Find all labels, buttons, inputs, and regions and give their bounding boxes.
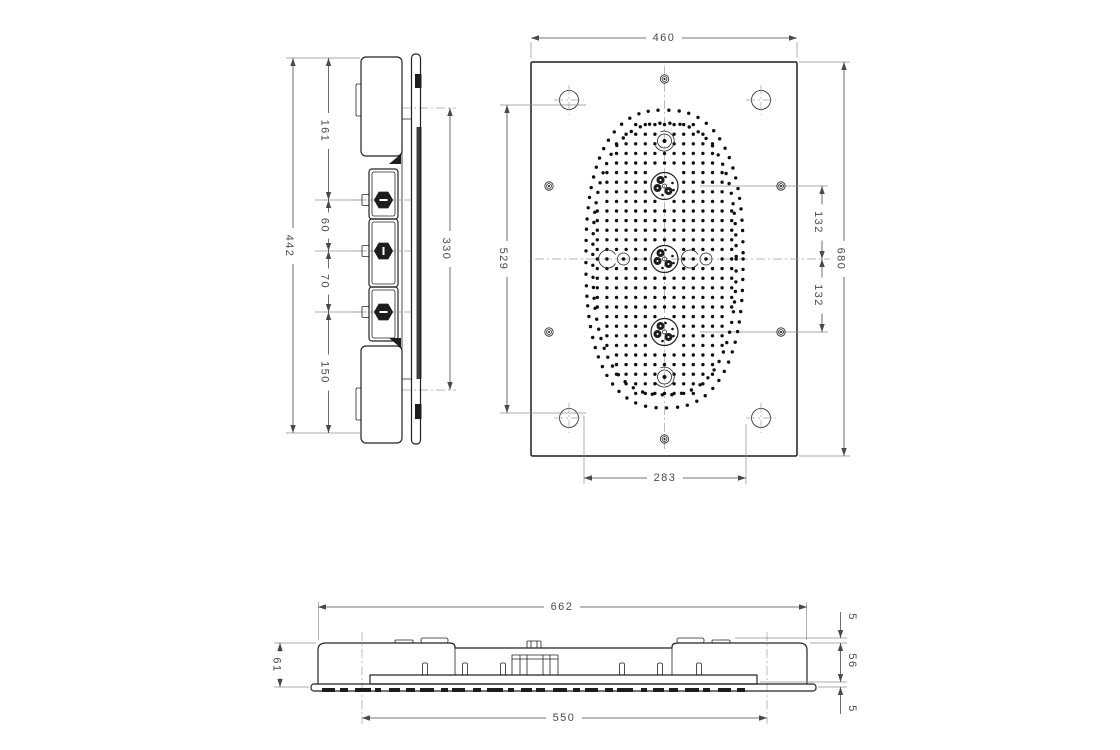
dim-housing-depth: 56 bbox=[846, 653, 858, 668]
dim-panel-lip: 5 bbox=[846, 705, 858, 713]
dim-lower-cluster-spacing: 132 bbox=[812, 284, 824, 307]
dim-third-valve-to-bottom: 150 bbox=[319, 361, 331, 384]
dim-first-to-second-valve: 60 bbox=[319, 218, 331, 233]
dim-spray-field-width: 283 bbox=[654, 472, 677, 484]
dim-overall-width: 662 bbox=[551, 601, 574, 613]
dim-bracket-span: 330 bbox=[440, 238, 452, 261]
dim-spray-field-height: 529 bbox=[497, 248, 509, 271]
dim-overall-height: 442 bbox=[283, 235, 295, 258]
dim-panel-width: 460 bbox=[653, 32, 676, 44]
front-view bbox=[500, 35, 850, 484]
dim-mounting-span: 550 bbox=[553, 712, 576, 724]
technical-drawing-canvas: 442 161 60 70 150 330 460 529 680 132 13… bbox=[0, 0, 1120, 750]
dim-ceiling-gap: 5 bbox=[846, 613, 858, 621]
dim-top-to-first-valve: 161 bbox=[319, 120, 331, 143]
dim-second-to-third-valve: 70 bbox=[319, 274, 331, 289]
dim-overall-depth: 61 bbox=[271, 657, 283, 672]
technical-drawing-page: 442 161 60 70 150 330 460 529 680 132 13… bbox=[0, 0, 1120, 750]
dim-upper-cluster-spacing: 132 bbox=[812, 211, 824, 234]
side-view bbox=[286, 54, 456, 444]
dim-panel-height: 680 bbox=[835, 248, 847, 271]
bottom-profile-view bbox=[274, 602, 847, 724]
